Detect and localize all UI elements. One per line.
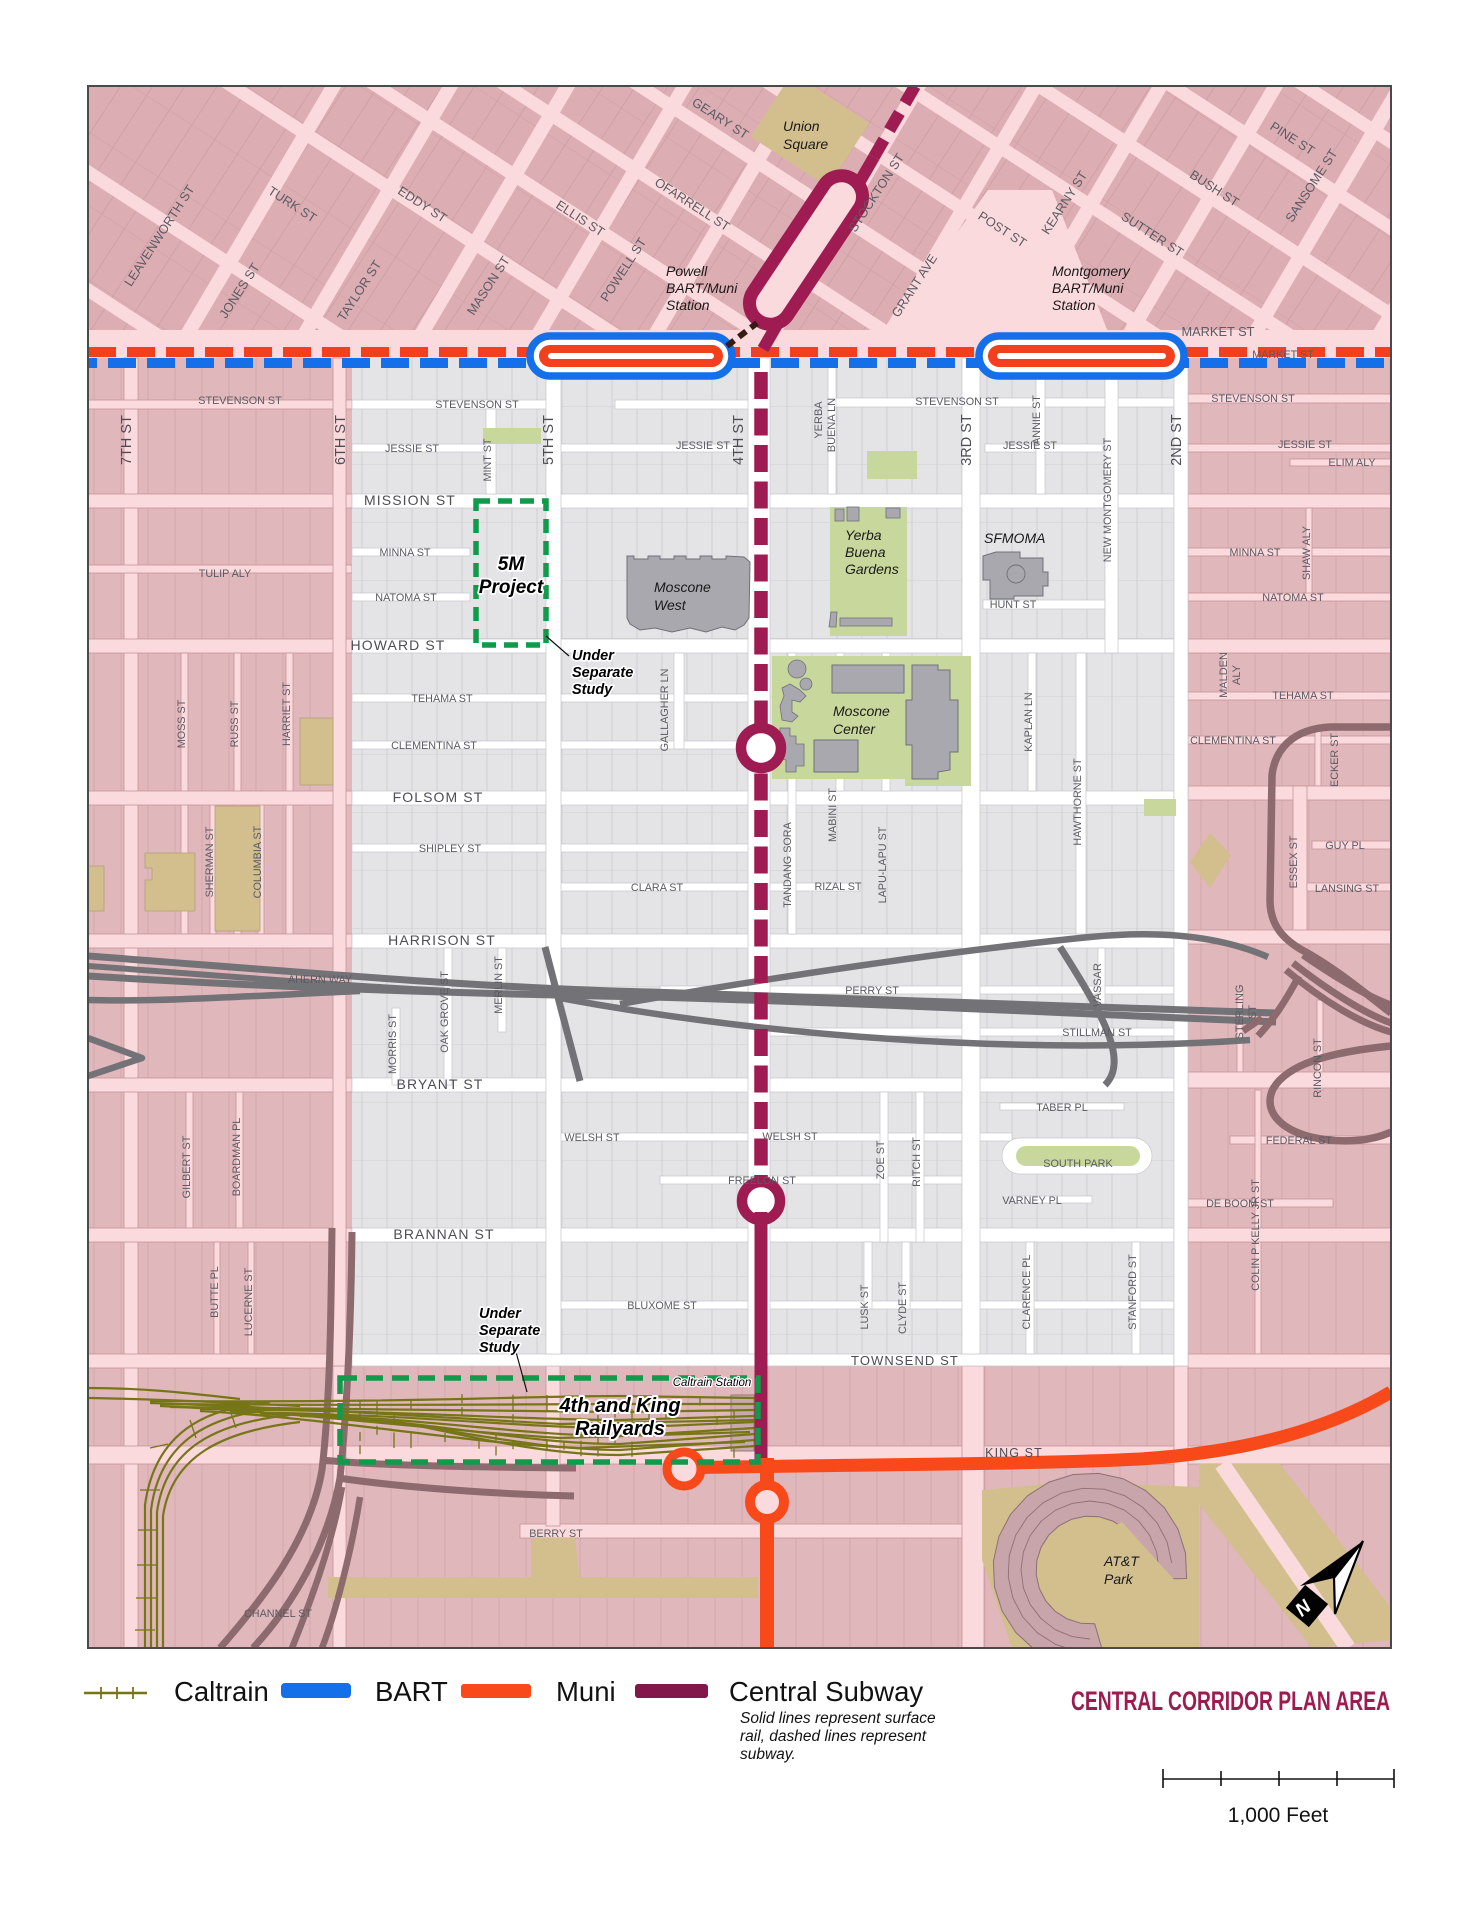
svg-text:subway.: subway. [740,1746,796,1763]
svg-text:Buena: Buena [845,544,886,560]
svg-text:CLYDE ST: CLYDE ST [897,1282,909,1334]
svg-text:TANDANG SORA: TANDANG SORA [782,821,794,907]
svg-text:BOARDMAN PL: BOARDMAN PL [231,1118,243,1197]
svg-text:BRANNAN ST: BRANNAN ST [393,1226,494,1242]
svg-text:BRYANT ST: BRYANT ST [397,1076,484,1092]
svg-text:STANFORD ST: STANFORD ST [1127,1254,1139,1330]
svg-text:CLEMENTINA ST: CLEMENTINA ST [1190,735,1276,747]
svg-text:LUCERNE ST: LUCERNE ST [243,1267,255,1336]
svg-text:JESSIE ST: JESSIE ST [676,440,730,452]
svg-text:OAK GROVE ST: OAK GROVE ST [439,971,451,1053]
svg-text:Project: Project [479,577,544,598]
svg-text:Powell: Powell [666,263,708,279]
svg-text:LANSING ST: LANSING ST [1315,883,1380,895]
svg-text:Moscone: Moscone [654,579,711,595]
svg-text:STEVENSON ST: STEVENSON ST [435,399,519,411]
svg-text:JESSIE ST: JESSIE ST [1278,439,1332,451]
svg-text:TOWNSEND ST: TOWNSEND ST [851,1353,959,1368]
svg-text:FOLSOM ST: FOLSOM ST [393,789,484,805]
svg-text:Under: Under [572,648,615,664]
svg-text:MINT ST: MINT ST [482,438,494,481]
svg-text:FREELON ST: FREELON ST [728,1175,796,1187]
svg-text:WELSH ST: WELSH ST [564,1132,620,1144]
svg-text:Moscone: Moscone [833,703,890,719]
svg-text:KING ST: KING ST [985,1446,1043,1460]
svg-text:Station: Station [666,297,710,313]
svg-text:Study: Study [479,1340,520,1356]
svg-text:COLIN P KELLY JR ST: COLIN P KELLY JR ST [1250,1179,1262,1291]
svg-text:CLEMENTINA ST: CLEMENTINA ST [391,740,477,752]
svg-text:RUSS ST: RUSS ST [229,700,241,747]
svg-text:Center: Center [833,721,876,737]
svg-text:HARRIET ST: HARRIET ST [281,682,293,746]
svg-text:STILLMAN ST: STILLMAN ST [1062,1027,1132,1039]
svg-text:CLARENCE PL: CLARENCE PL [1021,1254,1033,1329]
svg-text:Square: Square [783,136,828,152]
svg-text:AHERN WAY: AHERN WAY [288,974,352,986]
svg-text:BART/Muni: BART/Muni [1052,280,1124,296]
svg-text:TEHAMA ST: TEHAMA ST [1272,690,1334,702]
svg-text:Muni: Muni [556,1676,616,1707]
svg-text:SHAW ALY: SHAW ALY [1301,526,1313,580]
svg-text:ST: ST [1247,1005,1259,1019]
svg-text:HARRISON ST: HARRISON ST [388,932,496,948]
svg-text:MERLIN ST: MERLIN ST [493,956,505,1014]
svg-text:HAWTHORNE ST: HAWTHORNE ST [1072,758,1084,846]
svg-text:DE BOOM ST: DE BOOM ST [1206,1198,1274,1210]
svg-text:Caltrain Station: Caltrain Station [673,1377,752,1389]
svg-text:HOWARD ST: HOWARD ST [351,637,446,653]
svg-text:YERBA: YERBA [813,401,825,439]
svg-text:NATOMA ST: NATOMA ST [1262,592,1324,604]
svg-text:SHIPLEY ST: SHIPLEY ST [419,843,482,855]
svg-text:BLUXOME ST: BLUXOME ST [627,1300,697,1312]
svg-text:ANNIE ST: ANNIE ST [1031,395,1043,445]
svg-text:SHERMAN ST: SHERMAN ST [204,826,216,897]
svg-text:MALDEN: MALDEN [1218,652,1230,698]
svg-text:TEHAMA ST: TEHAMA ST [411,693,473,705]
svg-text:AT&T: AT&T [1103,1553,1140,1569]
svg-text:BART/Muni: BART/Muni [666,280,738,296]
svg-text:7TH ST: 7TH ST [119,415,135,465]
svg-text:Central Subway: Central Subway [729,1676,923,1707]
svg-text:MOSS ST: MOSS ST [176,699,188,748]
svg-text:MORRIS ST: MORRIS ST [387,1014,399,1074]
svg-text:RINCON ST: RINCON ST [1312,1038,1324,1098]
svg-text:ESSEX ST: ESSEX ST [1288,835,1300,888]
svg-text:STEVENSON ST: STEVENSON ST [1211,393,1295,405]
svg-text:WELSH ST: WELSH ST [762,1131,818,1143]
svg-text:West: West [654,597,687,613]
svg-text:Station: Station [1052,297,1096,313]
svg-text:VARNEY PL: VARNEY PL [1002,1195,1062,1207]
svg-text:MINNA ST: MINNA ST [380,547,431,559]
svg-text:KAPLAN LN: KAPLAN LN [1023,692,1035,751]
svg-text:MARKET ST: MARKET ST [1252,349,1314,361]
svg-text:CENTRAL CORRIDOR PLAN AREA: CENTRAL CORRIDOR PLAN AREA [1071,1686,1390,1716]
svg-text:VASSAR: VASSAR [1092,963,1104,1007]
svg-text:STERLING: STERLING [1234,984,1246,1039]
svg-text:JESSIE ST: JESSIE ST [385,443,439,455]
svg-text:NATOMA ST: NATOMA ST [375,592,437,604]
svg-text:Gardens: Gardens [845,561,899,577]
svg-text:RIZAL ST: RIZAL ST [815,881,862,893]
svg-text:Under: Under [479,1306,522,1322]
svg-text:Yerba: Yerba [845,527,882,543]
svg-text:BART: BART [375,1676,448,1707]
svg-text:STEVENSON ST: STEVENSON ST [915,396,999,408]
svg-text:MINNA ST: MINNA ST [1230,547,1281,559]
svg-text:ECKER ST: ECKER ST [1329,733,1341,787]
svg-text:Union: Union [783,118,820,134]
svg-text:ALY: ALY [1231,664,1243,685]
svg-text:Montgomery: Montgomery [1052,263,1131,279]
svg-text:PERRY ST: PERRY ST [845,985,899,997]
svg-text:BUENA LN: BUENA LN [826,398,838,452]
svg-text:6TH ST: 6TH ST [333,415,349,465]
svg-text:1,000 Feet: 1,000 Feet [1228,1804,1329,1827]
svg-text:MARKET ST: MARKET ST [1181,324,1254,339]
svg-text:CHANNEL ST: CHANNEL ST [244,1608,312,1620]
svg-text:MISSION ST: MISSION ST [364,492,456,508]
svg-text:MABINI ST: MABINI ST [827,788,839,842]
svg-text:CLARA ST: CLARA ST [631,882,684,894]
svg-text:BUTTE PL: BUTTE PL [209,1266,221,1318]
svg-text:4th and King: 4th and King [558,1395,680,1417]
svg-text:COLUMBIA ST: COLUMBIA ST [252,825,264,898]
svg-text:BERRY ST: BERRY ST [529,1528,583,1540]
svg-text:SOUTH PARK: SOUTH PARK [1043,1158,1113,1170]
svg-text:NEW MONTGOMERY ST: NEW MONTGOMERY ST [1102,437,1114,562]
svg-text:GILBERT ST: GILBERT ST [181,1135,193,1198]
svg-text:Park: Park [1104,1571,1134,1587]
svg-text:GALLAGHER LN: GALLAGHER LN [659,669,671,752]
svg-text:TABER PL: TABER PL [1036,1102,1087,1114]
svg-text:Study: Study [572,682,613,698]
svg-text:3RD ST: 3RD ST [959,414,975,466]
svg-text:RITCH ST: RITCH ST [911,1137,923,1187]
svg-text:ZOE ST: ZOE ST [875,1140,887,1179]
svg-text:2ND ST: 2ND ST [1169,414,1185,466]
svg-text:GUY PL: GUY PL [1325,840,1364,852]
svg-text:4TH ST: 4TH ST [731,415,747,465]
svg-text:HUNT ST: HUNT ST [990,599,1037,611]
svg-text:SFMOMA: SFMOMA [984,530,1045,546]
svg-text:TULIP ALY: TULIP ALY [199,568,251,580]
svg-text:ELIM ALY: ELIM ALY [1328,457,1375,469]
svg-text:Separate: Separate [572,665,633,681]
svg-text:rail, dashed lines represent: rail, dashed lines represent [740,1728,927,1745]
svg-text:Caltrain: Caltrain [174,1676,269,1707]
svg-text:LAPU-LAPU ST: LAPU-LAPU ST [877,826,889,903]
svg-text:FEDERAL ST: FEDERAL ST [1266,1135,1333,1147]
svg-text:Railyards: Railyards [575,1418,665,1440]
svg-text:LUSK ST: LUSK ST [859,1284,871,1329]
svg-text:5M: 5M [498,554,526,575]
svg-text:STEVENSON ST: STEVENSON ST [198,395,282,407]
svg-text:Solid lines represent surface: Solid lines represent surface [740,1710,936,1727]
svg-text:5TH ST: 5TH ST [541,415,557,465]
svg-text:Separate: Separate [479,1323,540,1339]
